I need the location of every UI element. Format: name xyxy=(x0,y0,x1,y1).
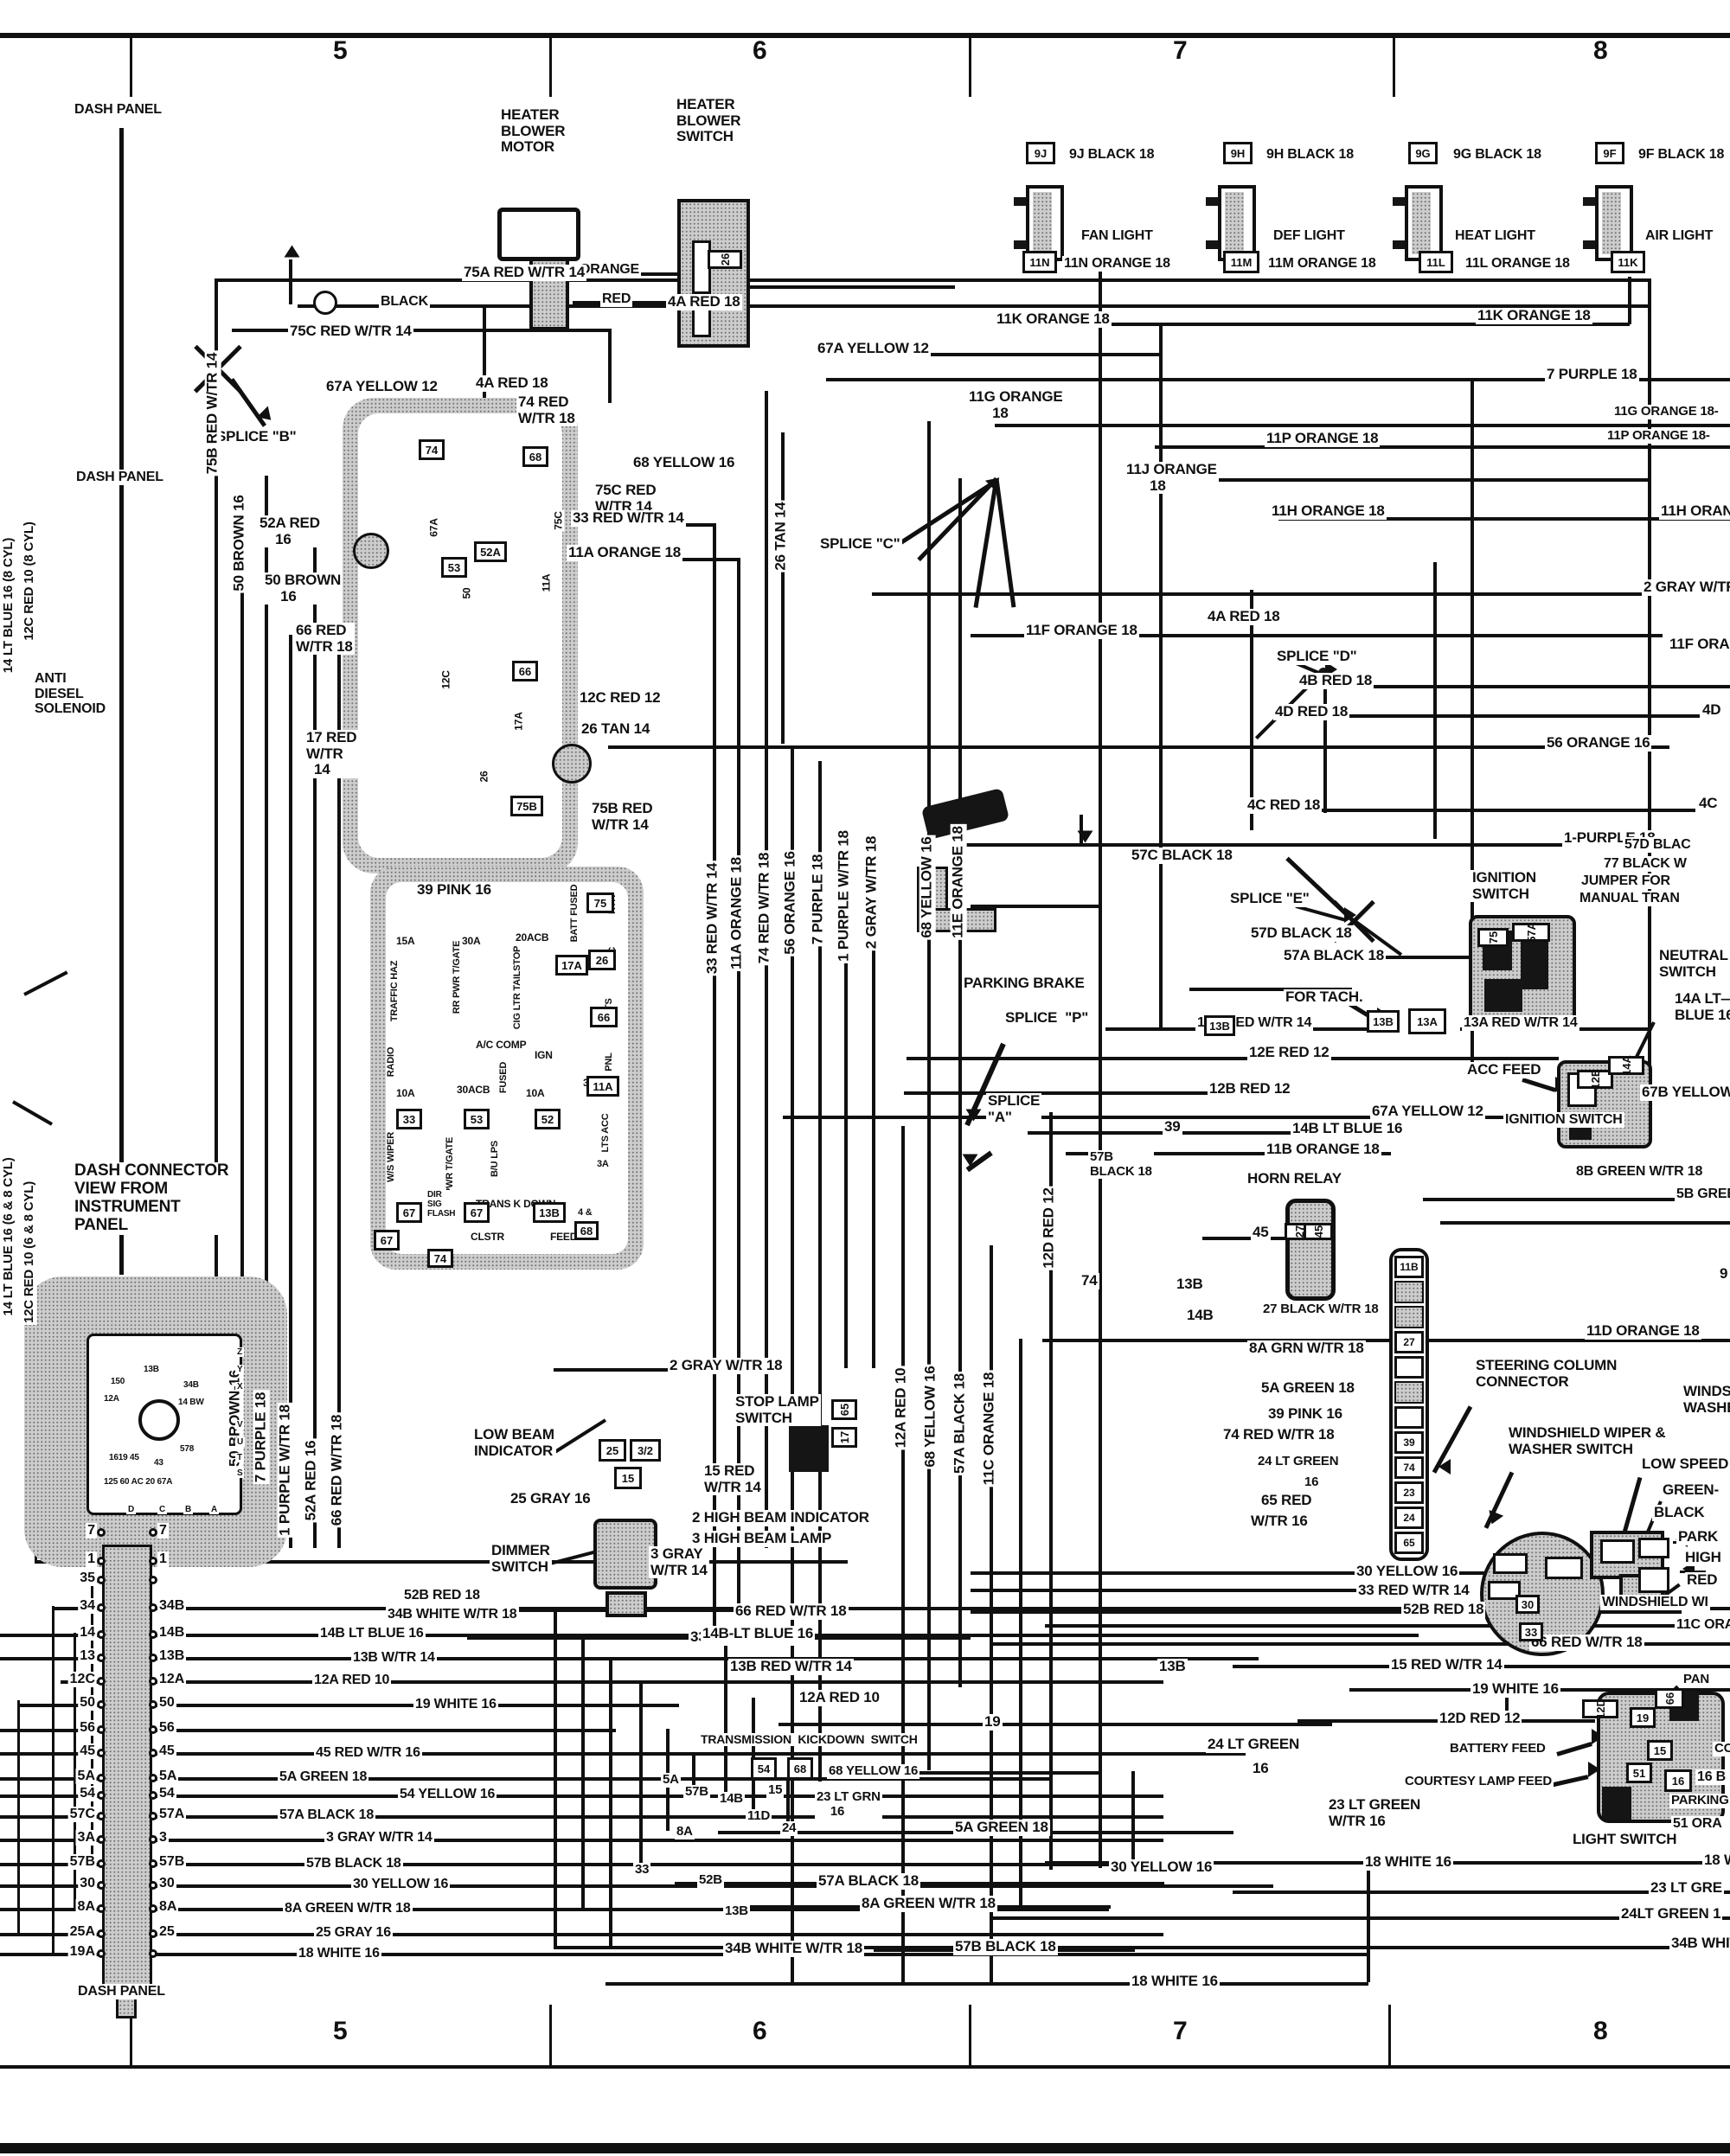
wire-label: 74 xyxy=(1080,1273,1099,1289)
wire xyxy=(901,1126,905,1982)
wire-label: 13A RED W/TR 14 xyxy=(1462,1015,1579,1031)
wire-label: 1619 45 xyxy=(107,1453,141,1462)
component-shape xyxy=(497,208,580,261)
wire-label: 11G ORANGE 18- xyxy=(1612,405,1720,419)
wire-label: 18 WHITE 16 xyxy=(297,1946,381,1961)
wire-label: ORANGE xyxy=(578,262,641,278)
terminal-tag: 52A xyxy=(474,541,507,562)
wire-label: 10A xyxy=(524,1088,546,1099)
connector-pin-label: 45 xyxy=(157,1743,176,1759)
wire xyxy=(313,528,317,1548)
wire-label: 57B BLACK 18 xyxy=(953,1939,1058,1955)
wire xyxy=(119,128,124,1275)
wire xyxy=(904,1091,1214,1095)
connector-pin-label: 57B xyxy=(157,1854,186,1870)
connector-pin xyxy=(149,1859,157,1868)
wire xyxy=(0,33,1730,38)
wire-label: 67B YELLOW xyxy=(1640,1084,1730,1101)
wire-label: 57B BLACK 18 xyxy=(304,1856,403,1871)
wire-label: 12A RED 10 xyxy=(312,1673,391,1688)
wire xyxy=(1628,277,1631,324)
arrowhead-icon xyxy=(1344,907,1364,923)
wire-label: 10A xyxy=(394,1088,416,1099)
wire-label: BLACK xyxy=(1652,1505,1707,1521)
indicator-lamp-body xyxy=(1225,192,1244,254)
wire-label: STEERING COLUMN CONNECTOR xyxy=(1474,1358,1618,1390)
connector-pin-label: 12A xyxy=(157,1672,186,1687)
wire-label: 17 RED W/TR 14 xyxy=(304,730,358,778)
arrowhead-icon xyxy=(1431,1459,1451,1475)
wire-label: 20ACB xyxy=(514,932,550,944)
wire-label: 4D RED 18 xyxy=(1273,704,1349,720)
wire-label: 3 GRAY W/TR 14 xyxy=(324,1830,434,1846)
wire-label: BATTERY FEED xyxy=(1448,1742,1547,1756)
wire-label: 27 BLACK W/TR 18 xyxy=(1261,1302,1381,1317)
wire-label: 23 LT GREEN W/TR 16 xyxy=(1327,1797,1422,1829)
connector-pin-label: 30 xyxy=(78,1876,97,1891)
wire-label: 52B RED 18 xyxy=(1401,1602,1485,1618)
wire-label: 5A GREEN 18 xyxy=(953,1820,1050,1836)
wire-label: 12C xyxy=(440,669,452,690)
terminal-tag: 66 xyxy=(590,1007,618,1027)
wire-label: PARKING xyxy=(1669,1794,1730,1808)
connector-pin xyxy=(149,1949,157,1958)
wire-label: W/S WIPER xyxy=(386,1130,396,1184)
wire-label: 75C xyxy=(553,509,564,531)
terminal-tag: 26 xyxy=(708,250,742,269)
wire-label: 74 RED W/TR 18 xyxy=(757,851,773,966)
connector-pin xyxy=(149,1904,157,1913)
arrowhead-icon xyxy=(1482,1510,1503,1534)
connector-pin xyxy=(149,1630,157,1639)
column-connector-cell: 65 xyxy=(1394,1532,1424,1554)
wire-label: 11N ORANGE 18 xyxy=(1062,256,1172,272)
connector-pin xyxy=(149,1749,157,1757)
component-shape xyxy=(313,291,337,315)
component-shape xyxy=(1545,1557,1583,1579)
wire-label: PARK xyxy=(1676,1529,1720,1545)
wire-label: CIG LTR TAILSTOP xyxy=(512,944,522,1031)
wire-label: DIR SIG FLASH xyxy=(426,1190,457,1219)
terminal-tag: 66 xyxy=(1655,1688,1684,1709)
connector-pin-label: 1 xyxy=(157,1551,169,1567)
wire xyxy=(765,391,768,1548)
wire-label: 13B xyxy=(142,1365,161,1374)
connector-pin xyxy=(97,1677,106,1686)
terminal-tag: 33 xyxy=(396,1109,422,1129)
wire-label: 11H ORANG xyxy=(1659,503,1730,520)
connector-pin-label: 13 xyxy=(78,1648,97,1664)
wire-label: 52B xyxy=(697,1873,724,1888)
connector-pin xyxy=(97,1654,106,1662)
wire-label: 67A YELLOW 12 xyxy=(816,341,931,357)
terminal-tag: 67 xyxy=(396,1202,422,1223)
connector-pin-label: 30 xyxy=(157,1876,176,1891)
wire-label: HEATER BLOWER MOTOR xyxy=(499,107,567,156)
wire-label: 74 RED W/TR 18 xyxy=(1221,1427,1336,1443)
wire-label: TRAFFIC HAZ xyxy=(389,959,400,1024)
connector-pin xyxy=(149,1881,157,1890)
wire-label: 8B GREEN W/TR 18 xyxy=(1574,1164,1704,1180)
wire xyxy=(639,1680,643,1871)
wire-label: 9F BLACK 18 xyxy=(1637,147,1726,163)
wire-label: GREEN- xyxy=(1661,1482,1720,1499)
wire-label: 51 ORA xyxy=(1671,1816,1724,1832)
terminal-tag: 9F xyxy=(1595,142,1624,164)
wire-label: 25 GRAY 16 xyxy=(509,1491,593,1507)
wire-label: 33 RED W/TR 14 xyxy=(705,861,721,976)
wire-label: 52B RED 18 xyxy=(402,1588,482,1603)
wire-label: HEATER BLOWER SWITCH xyxy=(675,97,742,145)
wire-label: 2 GRAY W/TR xyxy=(1642,579,1730,596)
component-shape xyxy=(1602,1787,1631,1820)
wire-label: 33 xyxy=(633,1863,650,1878)
terminal-tag: 68 xyxy=(787,1757,813,1780)
wire-label: 68 YELLOW 16 xyxy=(919,835,936,939)
connector-pin xyxy=(97,1630,106,1639)
component-shape xyxy=(138,1399,180,1441)
connector-pin xyxy=(149,1774,157,1782)
wire-label: 12C RED 12 xyxy=(578,690,662,707)
wire-label: RADIO xyxy=(386,1046,396,1078)
wire-label: 11C ORAN xyxy=(1675,1617,1730,1633)
terminal-tag: 75B xyxy=(510,796,543,816)
component-shape xyxy=(353,533,389,569)
connector-pin xyxy=(149,1528,157,1537)
wire-label: 2 GRAY W/TR 18 xyxy=(864,835,881,950)
wire xyxy=(872,899,875,1368)
wire-label: 4A RED 18 xyxy=(1206,609,1282,625)
wire-label: 24 LT GREEN xyxy=(1206,1737,1301,1753)
terminal-tag: 65 xyxy=(831,1399,857,1420)
connector-pin xyxy=(149,1835,157,1844)
wire-label: Y xyxy=(235,1365,244,1374)
wire-label: 39 PINK 16 xyxy=(415,882,493,899)
wire-label: 14 BW xyxy=(176,1398,206,1407)
wire-label: 11F ORANGE 18 xyxy=(1024,623,1139,639)
wire-label: D xyxy=(126,1505,136,1514)
wire-label: 8A xyxy=(675,1825,695,1839)
wire-label: 57B BLACK 18 xyxy=(1088,1150,1154,1179)
wire-label: 50 BROWN 16 xyxy=(232,493,248,592)
grid-number-top-6: 6 xyxy=(753,36,767,66)
wire xyxy=(969,2005,971,2067)
wire-label: 34B WHITE W/TR 18 xyxy=(386,1607,519,1622)
wire-label: PWR T/GATE xyxy=(445,1136,455,1196)
wire xyxy=(778,1723,1332,1726)
wire xyxy=(747,285,955,289)
grid-number-bottom-6: 6 xyxy=(753,2017,767,2046)
wire xyxy=(215,278,1648,282)
wire-label: 43 xyxy=(152,1458,165,1468)
wire xyxy=(1155,478,1648,482)
wire xyxy=(958,478,962,1687)
terminal-tag: 11A xyxy=(586,1076,619,1097)
wire-label: 11P ORANGE 18- xyxy=(1605,429,1712,444)
wire-label: 56 ORANGE 16 xyxy=(783,849,799,956)
wire-label: 68 YELLOW 16 xyxy=(827,1764,919,1779)
wire-label: BLACK xyxy=(379,294,430,310)
wire-label: 12A xyxy=(102,1394,121,1404)
component-shape xyxy=(593,1519,657,1590)
wire-diagonal xyxy=(1549,1775,1588,1788)
wire-label: 57D BLACK 18 xyxy=(1249,925,1354,942)
wire-label: 14B xyxy=(718,1792,745,1807)
wire-label: SPLICE "A" xyxy=(986,1093,1041,1125)
terminal-tag: 11K xyxy=(1611,251,1645,273)
wire xyxy=(1393,36,1395,97)
wire-label: DASH CONNECTOR VIEW FROM INSTRUMENT PANE… xyxy=(73,1162,230,1235)
wire-label: 4D xyxy=(1701,702,1722,719)
wire-label: FUSED xyxy=(498,1060,509,1095)
wire-label: WINDSHIELD WIPER & WASHER SWITCH xyxy=(1507,1425,1668,1457)
component-shape xyxy=(1493,1553,1528,1574)
wire-label: 57D BLAC xyxy=(1623,837,1693,853)
wire-label: HEAT LIGHT xyxy=(1453,228,1537,244)
wire-label: 7 PURPLE 18 xyxy=(1545,367,1639,383)
wire-diagonal xyxy=(899,481,995,545)
wire-label: CLSTR xyxy=(469,1232,506,1243)
wire-label: A/C COMP xyxy=(474,1040,528,1051)
lamp-terminal xyxy=(1206,197,1218,206)
connector-pin xyxy=(149,1557,157,1565)
component-shape xyxy=(605,1591,647,1617)
wire xyxy=(154,1729,616,1732)
connector-pin-label: 3A xyxy=(76,1830,97,1846)
wire-label: 75B RED W/TR 14 xyxy=(205,351,221,477)
wire-label: 7 PURPLE 18 xyxy=(811,853,827,947)
wire-label: JUMPER FOR xyxy=(1579,873,1672,889)
wire-label: 45 xyxy=(1251,1225,1271,1241)
terminal-tag: 15 xyxy=(1647,1740,1673,1761)
grid-number-top-8: 8 xyxy=(1593,36,1608,66)
component-shape xyxy=(1285,1199,1336,1301)
wire-label: 11H ORANGE 18 xyxy=(1270,503,1387,520)
arrowhead-icon xyxy=(285,238,300,258)
wire xyxy=(1155,445,1730,449)
wire-label: RR PWR T/GATE xyxy=(452,939,462,1016)
wire-label: 11P ORANGE 18 xyxy=(1265,431,1380,447)
connector-pin xyxy=(97,1528,106,1537)
wire-label: 18 W xyxy=(1702,1852,1730,1869)
wire-label: 13B xyxy=(723,1904,750,1919)
wire xyxy=(781,432,785,744)
connector-pin xyxy=(149,1576,157,1584)
wire-label: 2 GRAY W/TR 18 xyxy=(668,1358,784,1374)
wire-label: 16 xyxy=(1251,1761,1271,1777)
connector-pin xyxy=(97,1725,106,1734)
wire-label: 75C RED W/TR 14 xyxy=(288,323,413,340)
wire-label: 11M ORANGE 18 xyxy=(1266,256,1378,272)
wire-label: 23 LT GRE xyxy=(1649,1880,1724,1897)
wire-label: RED xyxy=(1685,1572,1719,1589)
wire-label: 12C RED 10 (8 CYL) xyxy=(22,520,37,642)
wire-label: 30 YELLOW 16 xyxy=(351,1877,450,1892)
wire xyxy=(1367,1861,1370,1982)
component-shape xyxy=(102,1545,152,1989)
component-shape xyxy=(677,199,750,348)
connector-pin xyxy=(97,1859,106,1868)
connector-pin-label: 57A xyxy=(157,1807,186,1822)
wire-label: B/U LPS xyxy=(490,1139,500,1179)
component-shape xyxy=(789,1425,829,1472)
wire-label: 24 xyxy=(780,1821,798,1836)
connector-pin xyxy=(97,1749,106,1757)
wire-label: LIGHT SWITCH xyxy=(1571,1832,1678,1848)
wire-label: Z xyxy=(235,1347,244,1357)
wire-label: 11K ORANGE 18 xyxy=(995,311,1112,328)
wiring-diagram-canvas: 5 6 7 8 5 6 7 8 DASH PANELHEATER BLOWER … xyxy=(0,0,1730,2156)
wire-label: 50 BROWN 16 xyxy=(263,573,343,605)
connector-pin-label: 56 xyxy=(78,1720,97,1736)
wire-label: 14 LT BLUE 16 (6 & 8 CYL) xyxy=(2,1155,16,1317)
arrowhead-icon xyxy=(1078,831,1093,851)
wire-label: 12E RED 12 xyxy=(1247,1045,1331,1061)
wire-label: 77 BLACK W xyxy=(1602,856,1688,872)
wire-label: LTS ACC xyxy=(600,1111,611,1154)
terminal-tag: 53 xyxy=(441,557,467,578)
wire-label: 14 LT BLUE 16 (8 CYL) xyxy=(2,536,16,675)
connector-pin-label: 45 xyxy=(78,1743,97,1759)
wire xyxy=(927,421,931,1770)
wire xyxy=(737,558,740,1615)
component-shape xyxy=(552,744,592,784)
wire-label: LOW SPEED xyxy=(1640,1456,1730,1473)
terminal-tag: 68 xyxy=(574,1221,599,1240)
wire-label: 67A xyxy=(428,516,439,538)
connector-pin-label: 8A xyxy=(76,1899,97,1915)
terminal-tag: 11N xyxy=(1022,251,1057,273)
terminal-tag: 17A xyxy=(555,955,588,976)
wire-label: 15 RED W/TR 14 xyxy=(702,1463,763,1495)
connector-pin-label: 19A xyxy=(68,1944,97,1960)
wire-label: DASH PANEL xyxy=(74,470,165,485)
connector-pin xyxy=(149,1929,157,1938)
wire-label: 9G BLACK 18 xyxy=(1451,147,1543,163)
wire-label: 578 xyxy=(178,1444,195,1454)
wire-label: 33 RED W/TR 14 xyxy=(1356,1583,1471,1599)
column-connector-cell: 23 xyxy=(1394,1481,1424,1504)
wire-label: B xyxy=(183,1505,193,1514)
connector-pin xyxy=(149,1700,157,1709)
wire-label: 11C ORANGE 18 xyxy=(982,1371,998,1487)
wire-label: 12A RED 10 xyxy=(798,1690,881,1706)
wire-label: 4A RED 18 xyxy=(666,294,742,310)
wire xyxy=(154,1795,1163,1798)
wire xyxy=(1302,809,1695,812)
wire-label: 11L ORANGE 18 xyxy=(1464,256,1572,272)
wire-label: CO xyxy=(1713,1742,1730,1756)
connector-pin-label: 54 xyxy=(157,1786,176,1801)
terminal-tag: 68 xyxy=(522,446,548,467)
wire-label: 30 YELLOW 16 xyxy=(1109,1859,1214,1876)
wire-label: 57A BLACK 18 xyxy=(952,1372,969,1475)
wire-label: FAN LIGHT xyxy=(1080,228,1155,244)
wire xyxy=(907,1057,1559,1060)
column-connector-cell xyxy=(1394,1281,1424,1303)
wire-label: 14B xyxy=(1185,1308,1215,1324)
wire xyxy=(1159,324,1163,1029)
terminal-tag: 30 xyxy=(1515,1595,1540,1614)
connector-pin xyxy=(97,1700,106,1709)
wire-label: 68 YELLOW 16 xyxy=(631,455,736,471)
wire-label: 11D xyxy=(746,1809,772,1824)
wire-label: 3 GRAY W/TR 14 xyxy=(649,1546,709,1578)
terminal-tag: 19 xyxy=(1630,1707,1656,1728)
wire-label: 19 WHITE 16 xyxy=(1470,1681,1560,1698)
wire-label: 11D ORANGE 18 xyxy=(1585,1323,1701,1340)
wire-label: 57B xyxy=(683,1785,710,1800)
wire-label: 16 xyxy=(1303,1475,1320,1490)
wire xyxy=(483,304,1648,308)
connector-pin-label: 57B xyxy=(68,1854,97,1870)
wire-label: 12A RED 10 xyxy=(894,1366,910,1450)
wire-label: 4C xyxy=(1697,796,1719,812)
wire-label: 17A xyxy=(513,710,524,732)
wire-label: DASH PANEL xyxy=(73,102,163,118)
connector-pin-label: 5A xyxy=(76,1769,97,1784)
wire-label: WINDS WASHE xyxy=(1682,1384,1730,1416)
wire-label: 57A BLACK 18 xyxy=(817,1873,920,1890)
wire-label: STOP LAMP SWITCH xyxy=(734,1394,821,1426)
component-shape xyxy=(1484,979,1522,1012)
grid-number-top-7: 7 xyxy=(1173,36,1188,66)
connector-pin xyxy=(149,1791,157,1800)
wire xyxy=(1202,1237,1287,1240)
wire-label: SPLICE "E" xyxy=(1228,891,1311,907)
wire-label: FOR TACH. xyxy=(1284,989,1364,1006)
wire-label: TRANSMISSION KICKDOWN SWITCH xyxy=(699,1733,919,1746)
wire xyxy=(1388,2005,1391,2067)
wire-label: 12C RED 10 (6 & 8 CYL) xyxy=(22,1180,37,1325)
component-shape xyxy=(1600,1539,1635,1564)
wire-label: 65 RED xyxy=(1259,1493,1313,1509)
wire-label: 7 PURPLE 18 xyxy=(253,1391,270,1485)
wire-diagonal xyxy=(1556,1742,1592,1756)
connector-pin xyxy=(149,1654,157,1662)
column-connector-cell xyxy=(1394,1356,1424,1379)
wire-label: IGNITION SWITCH xyxy=(1470,870,1538,902)
wire-label: LOW BEAM INDICATOR xyxy=(472,1427,556,1459)
wire-label: 56 ORANGE 16 xyxy=(1545,735,1651,752)
terminal-tag: 67 xyxy=(374,1230,400,1251)
wire-label: 15 RED W/TR 14 xyxy=(1389,1657,1504,1673)
connector-pin-label: 13B xyxy=(157,1648,186,1664)
wire-label: 34B WHITE W/TR 18 xyxy=(723,1941,864,1957)
connector-pin xyxy=(97,1881,106,1890)
wire xyxy=(1250,590,1253,830)
wire-label: 19 xyxy=(983,1714,1003,1731)
wire xyxy=(969,36,971,97)
terminal-tag: 9J xyxy=(1026,142,1055,164)
wire-label: 4C RED 18 xyxy=(1246,797,1322,814)
wire-label: 13B xyxy=(1157,1659,1188,1675)
wire-label: IGNITION SWITCH xyxy=(1503,1112,1624,1128)
wire xyxy=(872,592,1730,596)
wire xyxy=(581,1636,585,1908)
indicator-lamp-body xyxy=(1412,192,1431,254)
wire-label: 5A GREEN 18 xyxy=(1259,1380,1356,1397)
wire xyxy=(154,1680,1163,1684)
connector-pin xyxy=(97,1929,106,1938)
connector-pin-label: 34B xyxy=(157,1598,186,1614)
wire-label: 66 RED W/TR 18 xyxy=(734,1603,849,1620)
wire-label: 34B xyxy=(182,1380,201,1390)
wire-label: 34B WHIT xyxy=(1669,1935,1730,1952)
column-connector-cell: 24 xyxy=(1394,1507,1424,1529)
connector-pin xyxy=(97,1949,106,1958)
wire-label: 4A RED 18 xyxy=(474,375,550,392)
